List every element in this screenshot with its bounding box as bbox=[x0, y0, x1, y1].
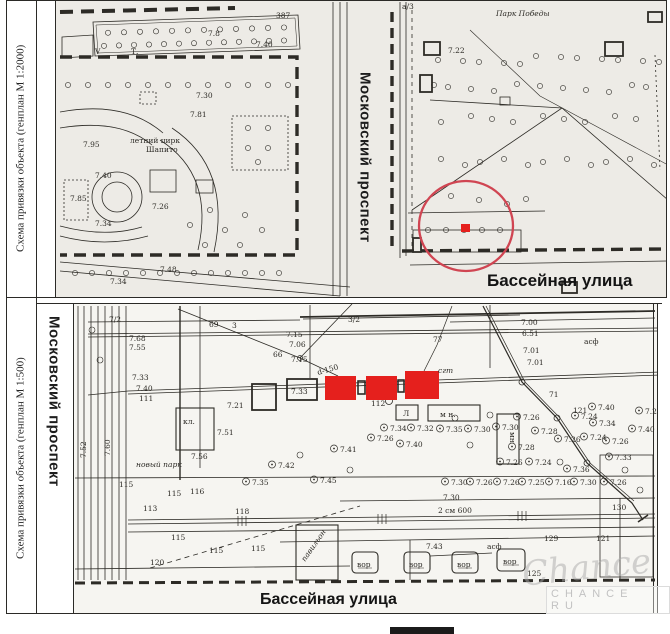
map-label: 7.43 bbox=[426, 542, 443, 551]
tree-symbol-dot bbox=[333, 448, 335, 450]
map-label: 7.34 bbox=[110, 277, 127, 286]
tree-symbol-dot bbox=[521, 481, 523, 483]
panel-divider bbox=[6, 297, 667, 298]
map-label: 7.95 bbox=[83, 140, 100, 149]
map-label: 7.01 bbox=[523, 346, 540, 355]
map-label: 7.30 bbox=[443, 493, 460, 502]
bottom-street-basseynaya-label: Бассейная улица bbox=[260, 591, 397, 609]
bottom-map-top-frame bbox=[36, 303, 662, 304]
watermark-caption: CHANCE RU bbox=[546, 586, 670, 614]
map-label: 118 bbox=[235, 507, 250, 516]
map-label: 115 bbox=[167, 489, 182, 498]
tree-symbol-dot bbox=[591, 406, 593, 408]
bottom-map-right-frame bbox=[653, 303, 654, 613]
tree-symbol-dot bbox=[439, 428, 441, 430]
map-label: 7.28 bbox=[541, 427, 558, 436]
map-label: 7.52 bbox=[79, 441, 88, 458]
map-label: 7.26 bbox=[476, 478, 493, 487]
tree-symbol-dot bbox=[511, 446, 513, 448]
map-label: 7.26 bbox=[645, 407, 657, 416]
map-label: 7.85 bbox=[70, 194, 87, 203]
map-label: 7.40 bbox=[598, 403, 615, 412]
tree-symbol-dot bbox=[499, 461, 501, 463]
map-label: 7.35 bbox=[446, 425, 463, 434]
map-label: 7.26 bbox=[503, 478, 520, 487]
tree-symbol-dot bbox=[566, 468, 568, 470]
tree-symbol-dot bbox=[496, 481, 498, 483]
map-label: 7.15 bbox=[291, 355, 308, 364]
map-label: 7.55 bbox=[129, 343, 146, 352]
map-label: 7.26 bbox=[377, 434, 394, 443]
map-label: 7.51 bbox=[217, 428, 234, 437]
map-label: 3/2 bbox=[348, 315, 360, 324]
map-label: 7/2 bbox=[109, 315, 121, 324]
map-label: 129 bbox=[544, 534, 559, 543]
map-label: V bbox=[94, 47, 101, 56]
map-label: 113 bbox=[143, 504, 158, 513]
map-label: 7.30 bbox=[196, 91, 213, 100]
map-label: 7.8 bbox=[208, 29, 220, 38]
map-label: кл. bbox=[183, 417, 195, 426]
map-label: 77 bbox=[433, 335, 443, 344]
map-label: 7.35 bbox=[252, 478, 269, 487]
tree-symbol-dot bbox=[383, 427, 385, 429]
map-label: 71 bbox=[549, 390, 559, 399]
map-label: 7.33 bbox=[615, 453, 632, 462]
bottom-panel-caption: Схема привязки объекта (генплан М 1:500) bbox=[5, 304, 36, 613]
map-label: вор bbox=[357, 560, 371, 569]
map-label: 7.40 bbox=[256, 40, 273, 49]
map-label: 112 bbox=[371, 399, 386, 408]
map-label: 7.33 bbox=[291, 387, 308, 396]
map-label: вор bbox=[503, 557, 517, 566]
map-label: 7.01 bbox=[527, 358, 544, 367]
map-label: 7.00 bbox=[521, 318, 538, 327]
map-label: мн bbox=[508, 432, 517, 443]
top-border bbox=[6, 0, 667, 1]
map-label: 7.26 bbox=[610, 478, 627, 487]
map-label: 7.26 bbox=[152, 202, 169, 211]
map-label: 7.21 bbox=[227, 401, 244, 410]
map-label: вор bbox=[457, 560, 471, 569]
map-label: 7.42 bbox=[278, 461, 295, 470]
bottom-cropped-bar bbox=[390, 627, 454, 634]
tree-symbol-dot bbox=[245, 481, 247, 483]
map-label: м н. bbox=[440, 410, 456, 419]
tree-symbol-dot bbox=[631, 428, 633, 430]
tree-symbol-dot bbox=[399, 443, 401, 445]
tree-symbol-dot bbox=[495, 426, 497, 428]
map-label: 7.33 bbox=[132, 373, 149, 382]
map-label: 7.34 bbox=[95, 219, 112, 228]
tree-symbol-dot bbox=[605, 440, 607, 442]
map-label: 6.51 bbox=[522, 329, 539, 338]
tree-symbol-dot bbox=[410, 427, 412, 429]
map-label: 7.30 bbox=[580, 478, 597, 487]
map-label: 111 bbox=[139, 394, 153, 403]
tree-symbol-dot bbox=[608, 456, 610, 458]
map-label: 7.24 bbox=[535, 458, 552, 467]
map-label: 7.41 bbox=[340, 445, 357, 454]
tree-symbol-dot bbox=[528, 461, 530, 463]
tree-symbol-dot bbox=[574, 415, 576, 417]
map-label: 7.45 bbox=[320, 476, 337, 485]
map-label: 7.28 bbox=[518, 443, 535, 452]
map-label: 7.81 bbox=[190, 110, 207, 119]
map-label: 7.26 bbox=[564, 435, 581, 444]
map-label: 115 bbox=[171, 533, 186, 542]
map-label: вор bbox=[409, 560, 423, 569]
map-label: асф bbox=[584, 337, 599, 346]
map-label: 7.32 bbox=[417, 424, 434, 433]
top-map-right-frame bbox=[666, 0, 667, 297]
map-label: сгт bbox=[438, 366, 453, 375]
map-label: 3 bbox=[232, 321, 237, 330]
scanned-site-plan-document: 3877.87.40VТ.7.307.817.95летний циркШапи… bbox=[0, 0, 670, 634]
tree-symbol-dot bbox=[534, 430, 536, 432]
tree-symbol-dot bbox=[557, 438, 559, 440]
map-label: 7.26 bbox=[506, 458, 523, 467]
map-label: 7.30 bbox=[451, 478, 468, 487]
object-marker-square bbox=[461, 224, 470, 232]
map-label: 7.34 bbox=[390, 424, 407, 433]
map-label: а/3 bbox=[402, 2, 414, 11]
map-label: 7.40 bbox=[95, 171, 112, 180]
tree-symbol-dot bbox=[583, 436, 585, 438]
tree-symbol-dot bbox=[638, 410, 640, 412]
caption-column-border bbox=[36, 0, 37, 613]
tree-symbol-dot bbox=[313, 479, 315, 481]
map-label: 7.06 bbox=[289, 340, 306, 349]
bottom-street-moskovsky-label: Московский проспект bbox=[40, 312, 68, 490]
map-label: 130 bbox=[612, 503, 627, 512]
map-label: 7.34 bbox=[599, 419, 616, 428]
tree-symbol-dot bbox=[444, 481, 446, 483]
top-street-basseynaya-label: Бассейная улица bbox=[487, 271, 632, 291]
map-label: 115 bbox=[209, 546, 224, 555]
top-map-left-frame bbox=[55, 0, 56, 297]
top-panel-caption: Схема привязки объекта (генплан М 1:2000… bbox=[5, 0, 36, 297]
map-label: 7.25 bbox=[528, 478, 545, 487]
map-label: асф bbox=[487, 542, 502, 551]
map-label: 7.56 bbox=[191, 452, 208, 461]
map-label: 115 bbox=[119, 480, 134, 489]
map-label: Л bbox=[403, 409, 409, 418]
map-label: Шапито bbox=[146, 145, 178, 154]
map-label: 66 bbox=[273, 350, 283, 359]
map-label: 7.68 bbox=[129, 334, 146, 343]
bottom-map-left-frame bbox=[73, 303, 74, 613]
map-label: 7.40 bbox=[406, 440, 423, 449]
map-label: 120 bbox=[150, 558, 165, 567]
tree-symbol-dot bbox=[467, 428, 469, 430]
map-label: 7.30 bbox=[502, 423, 519, 432]
map-label: 2 см 600 bbox=[438, 506, 472, 515]
map-label: 7.26 bbox=[612, 437, 629, 446]
map-label: 7.36 bbox=[573, 465, 590, 474]
top-street-moskovsky-label: Московский проспект bbox=[352, 62, 378, 252]
map-label: 7.26 bbox=[523, 413, 540, 422]
map-label: летний цирк bbox=[130, 136, 180, 145]
map-label: 7.40 bbox=[136, 384, 153, 393]
map-label: 7.60 bbox=[103, 439, 112, 456]
tree-symbol-dot bbox=[271, 464, 273, 466]
tree-symbol-dot bbox=[516, 416, 518, 418]
map-label: 387 bbox=[276, 11, 291, 20]
tree-symbol-dot bbox=[370, 437, 372, 439]
map-label: 7.48 bbox=[160, 265, 177, 274]
map-label: Т. bbox=[131, 47, 138, 56]
map-label: Парк Победы bbox=[495, 9, 550, 18]
tree-symbol-dot bbox=[548, 481, 550, 483]
map-label: 116 bbox=[190, 487, 205, 496]
map-label: 7.16 bbox=[555, 478, 572, 487]
map-label: 7.30 bbox=[474, 425, 491, 434]
tree-symbol-dot bbox=[573, 481, 575, 483]
map-label: 7.15 bbox=[286, 330, 303, 339]
tree-symbol-dot bbox=[592, 422, 594, 424]
map-label: 121 bbox=[596, 534, 610, 543]
map-label: новый парк bbox=[136, 460, 182, 469]
map-label: 69 bbox=[209, 320, 219, 329]
bottom-map-right-frame-2 bbox=[657, 303, 658, 613]
map-label: 7.22 bbox=[448, 46, 465, 55]
tree-symbol-dot bbox=[469, 481, 471, 483]
map-label: 115 bbox=[251, 544, 266, 553]
tree-symbol-dot bbox=[603, 481, 605, 483]
